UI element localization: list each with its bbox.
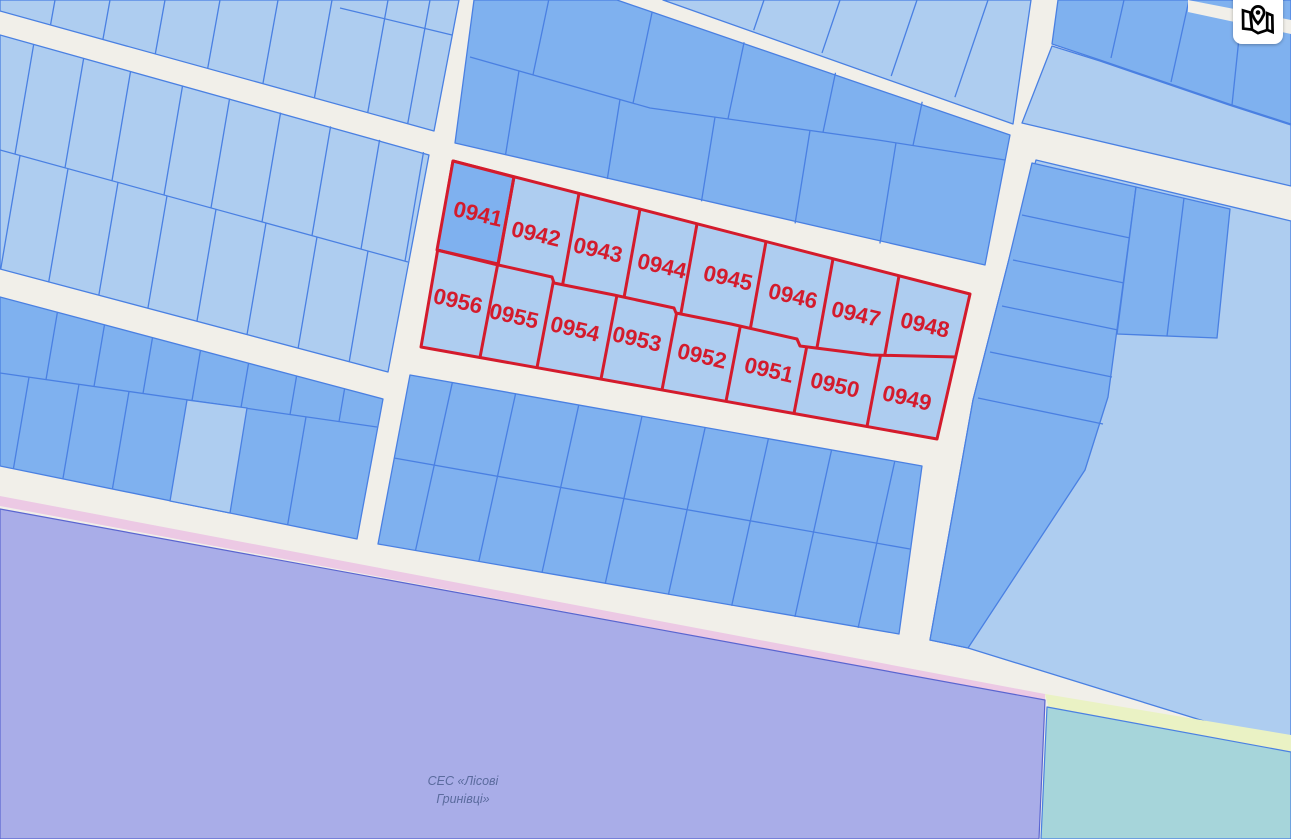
svg-text:Гринівці»: Гринівці»	[436, 792, 489, 806]
svg-text:СЕС «Лісові: СЕС «Лісові	[428, 774, 500, 788]
